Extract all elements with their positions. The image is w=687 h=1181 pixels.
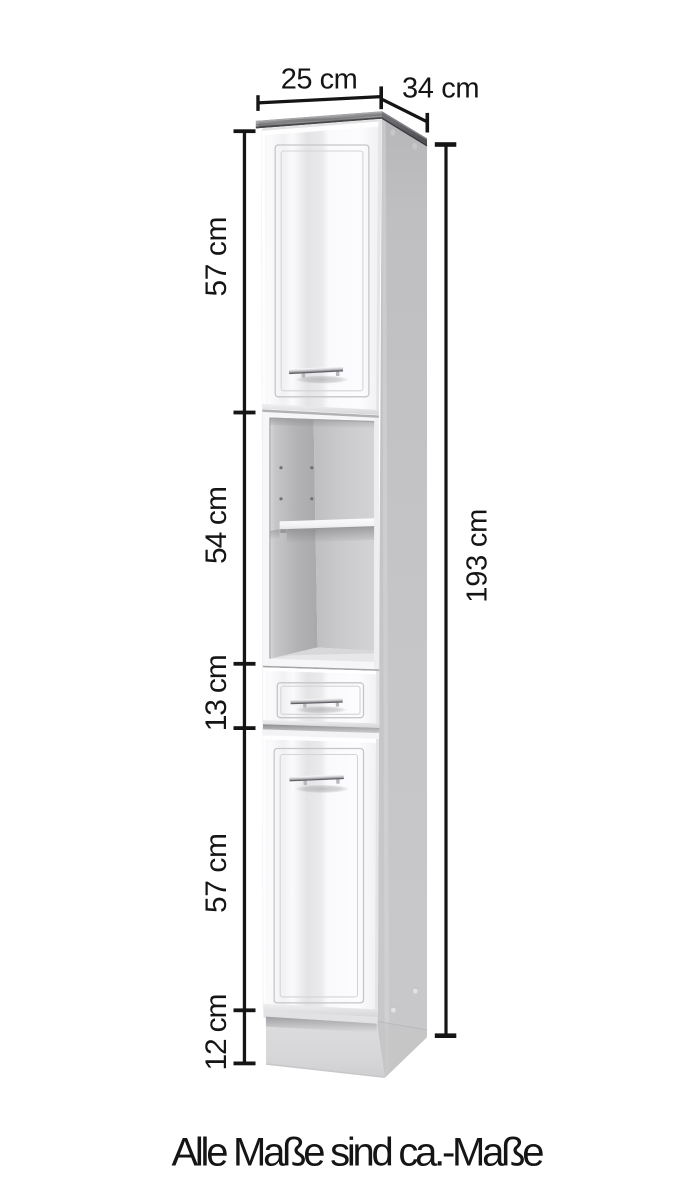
svg-text:57 cm: 57 cm: [200, 833, 233, 913]
svg-text:25 cm: 25 cm: [281, 64, 358, 96]
svg-text:193 cm: 193 cm: [462, 509, 494, 603]
svg-text:12 cm: 12 cm: [200, 994, 233, 1071]
svg-text:54 cm: 54 cm: [200, 486, 233, 564]
svg-text:34 cm: 34 cm: [402, 73, 480, 105]
svg-text:57 cm: 57 cm: [200, 217, 233, 297]
svg-text:Alle Maße sind ca.-Maße: Alle Maße sind ca.-Maße: [172, 1131, 545, 1175]
svg-text:13 cm: 13 cm: [200, 654, 233, 731]
